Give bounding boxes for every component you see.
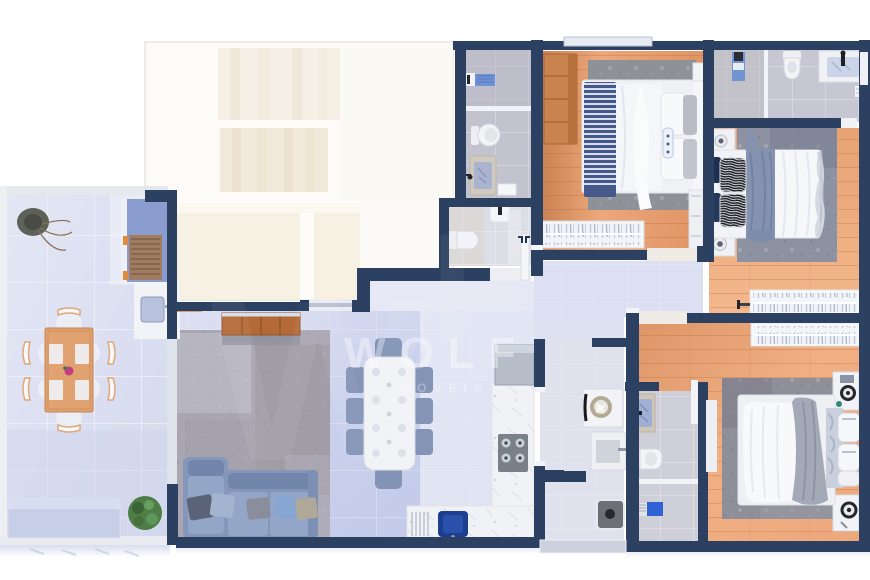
svg-text:W: W xyxy=(210,252,427,509)
svg-text:F: F xyxy=(430,200,528,379)
